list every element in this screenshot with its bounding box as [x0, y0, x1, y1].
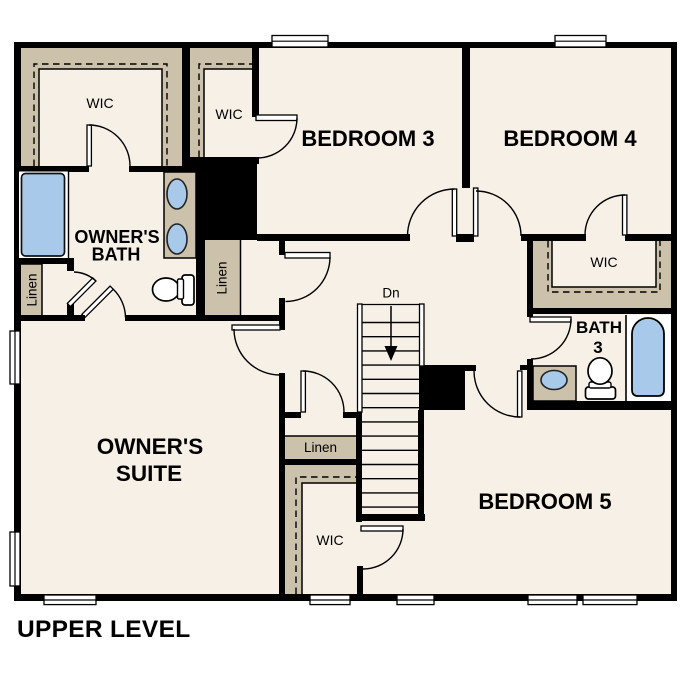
- svg-text:Linen: Linen: [215, 261, 230, 294]
- svg-text:Dn: Dn: [382, 286, 399, 301]
- svg-text:BEDROOM 3: BEDROOM 3: [301, 126, 434, 151]
- svg-text:BEDROOM 4: BEDROOM 4: [503, 126, 637, 151]
- svg-text:BATH: BATH: [576, 318, 622, 337]
- svg-text:WIC: WIC: [590, 254, 617, 270]
- svg-text:WIC: WIC: [86, 95, 113, 111]
- svg-text:BATH: BATH: [92, 245, 141, 265]
- svg-text:BEDROOM 5: BEDROOM 5: [478, 489, 611, 514]
- svg-text:SUITE: SUITE: [116, 461, 182, 486]
- svg-text:WIC: WIC: [316, 532, 343, 548]
- svg-text:3: 3: [593, 338, 602, 357]
- svg-text:OWNER'S: OWNER'S: [97, 434, 204, 459]
- svg-text:UPPER LEVEL: UPPER LEVEL: [17, 616, 190, 643]
- svg-text:Linen: Linen: [25, 273, 40, 306]
- svg-text:WIC: WIC: [215, 106, 242, 122]
- svg-text:Linen: Linen: [304, 440, 337, 455]
